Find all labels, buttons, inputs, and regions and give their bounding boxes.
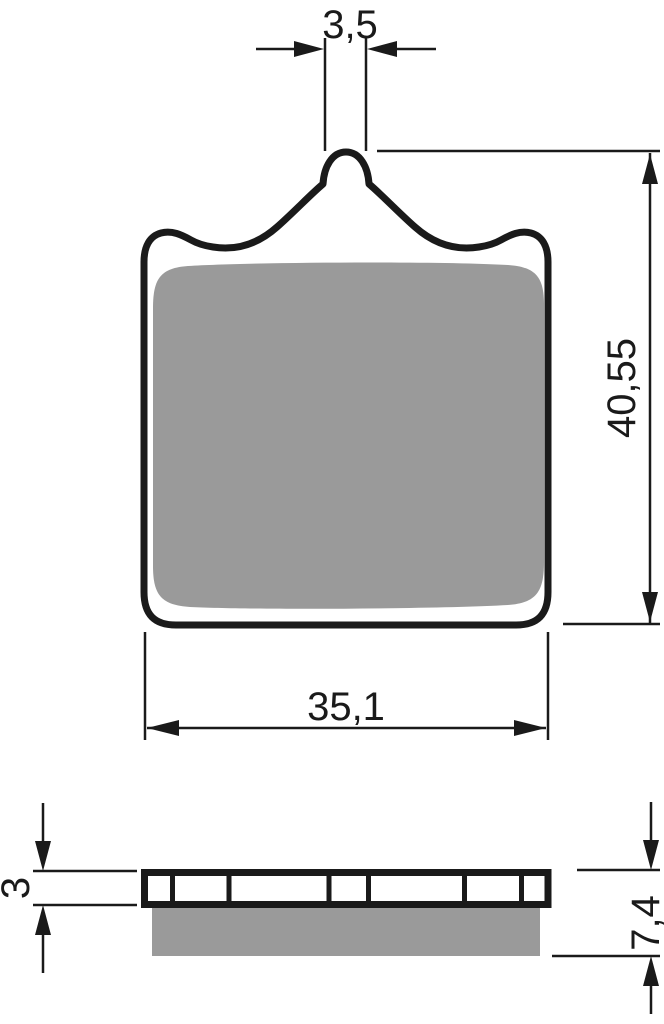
dimension-tab-width (256, 38, 436, 151)
side-view (145, 872, 549, 956)
tab-width-dimension-label: 3,5 (322, 5, 378, 45)
backing-plate (145, 873, 549, 905)
total-thickness-dimension-label: 7,4 (626, 895, 664, 951)
brake-pad-drawing (0, 0, 664, 1024)
arrowhead-up-icon (643, 956, 659, 986)
front-view (144, 152, 548, 625)
plate-thickness-dimension-label: 3 (0, 877, 36, 899)
technical-drawing-canvas: 3,5 40,55 35,1 3 7,4 (0, 0, 664, 1024)
friction-material-front (153, 262, 544, 608)
height-dimension-label: 40,55 (602, 338, 642, 438)
arrowhead-down-icon (643, 840, 659, 870)
arrowhead-left-icon (147, 720, 179, 736)
arrowhead-right-icon (514, 720, 546, 736)
arrowhead-down-icon (35, 841, 51, 871)
arrowhead-down-icon (642, 592, 658, 622)
dimension-plate-thickness (33, 803, 137, 973)
arrowhead-right-icon (294, 41, 324, 57)
friction-material-side (152, 905, 540, 956)
arrowhead-up-icon (642, 154, 658, 184)
arrowhead-up-icon (35, 905, 51, 935)
width-dimension-label: 35,1 (307, 687, 385, 727)
